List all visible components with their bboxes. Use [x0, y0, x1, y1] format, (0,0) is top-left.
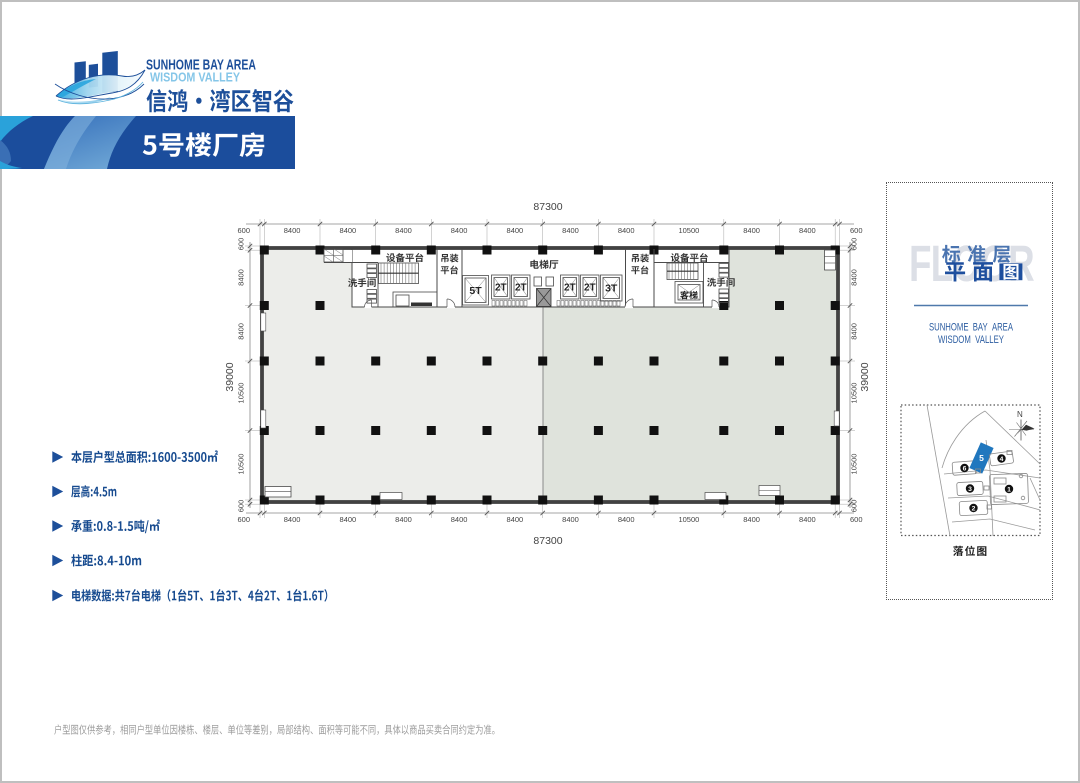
svg-text:10500: 10500 [850, 454, 859, 475]
svg-text:5T: 5T [469, 285, 482, 297]
svg-text:2T: 2T [564, 283, 576, 294]
svg-text:600: 600 [850, 500, 859, 513]
svg-text:8400: 8400 [395, 226, 412, 235]
svg-text:3T: 3T [605, 283, 618, 295]
svg-text:8400: 8400 [237, 323, 246, 340]
svg-text:8400: 8400 [395, 515, 412, 524]
svg-text:8400: 8400 [743, 515, 760, 524]
svg-text:2T: 2T [584, 283, 596, 294]
svg-text:8400: 8400 [562, 226, 579, 235]
svg-text:600: 600 [237, 226, 250, 235]
svg-text:8400: 8400 [451, 515, 468, 524]
svg-text:2T: 2T [495, 283, 507, 294]
svg-text:1: 1 [1007, 487, 1011, 494]
svg-text:10500: 10500 [850, 383, 859, 404]
svg-text:600: 600 [850, 238, 859, 251]
svg-text:8400: 8400 [850, 323, 859, 340]
svg-text:3: 3 [968, 486, 972, 493]
svg-text:8400: 8400 [562, 515, 579, 524]
svg-text:600: 600 [850, 226, 863, 235]
svg-text:8400: 8400 [743, 226, 760, 235]
svg-text:10500: 10500 [678, 226, 699, 235]
svg-text:6: 6 [963, 466, 967, 473]
svg-text:5: 5 [979, 453, 984, 463]
svg-text:8400: 8400 [799, 515, 816, 524]
svg-text:8400: 8400 [618, 226, 635, 235]
svg-text:8400: 8400 [451, 226, 468, 235]
svg-text:8400: 8400 [284, 226, 301, 235]
svg-text:600: 600 [850, 515, 863, 524]
svg-text:8400: 8400 [340, 226, 357, 235]
svg-text:2T: 2T [515, 283, 527, 294]
svg-text:N: N [1017, 410, 1023, 419]
svg-text:8400: 8400 [850, 269, 859, 286]
svg-text:87300: 87300 [533, 535, 562, 547]
svg-text:8400: 8400 [507, 515, 524, 524]
svg-text:10500: 10500 [678, 515, 699, 524]
svg-text:39000: 39000 [859, 362, 871, 391]
svg-text:WISDOM VALLEY: WISDOM VALLEY [938, 334, 1004, 346]
svg-text:8400: 8400 [507, 226, 524, 235]
svg-text:8400: 8400 [799, 226, 816, 235]
svg-text:8400: 8400 [618, 515, 635, 524]
svg-text:10500: 10500 [237, 383, 246, 404]
svg-text:8400: 8400 [237, 269, 246, 286]
svg-text:2: 2 [972, 506, 976, 513]
svg-text:87300: 87300 [533, 201, 562, 213]
svg-text:4: 4 [1000, 456, 1004, 463]
svg-text:600: 600 [237, 238, 246, 251]
svg-text:SUNHOME BAY AREA: SUNHOME BAY AREA [929, 322, 1013, 334]
svg-text:39000: 39000 [224, 362, 236, 391]
